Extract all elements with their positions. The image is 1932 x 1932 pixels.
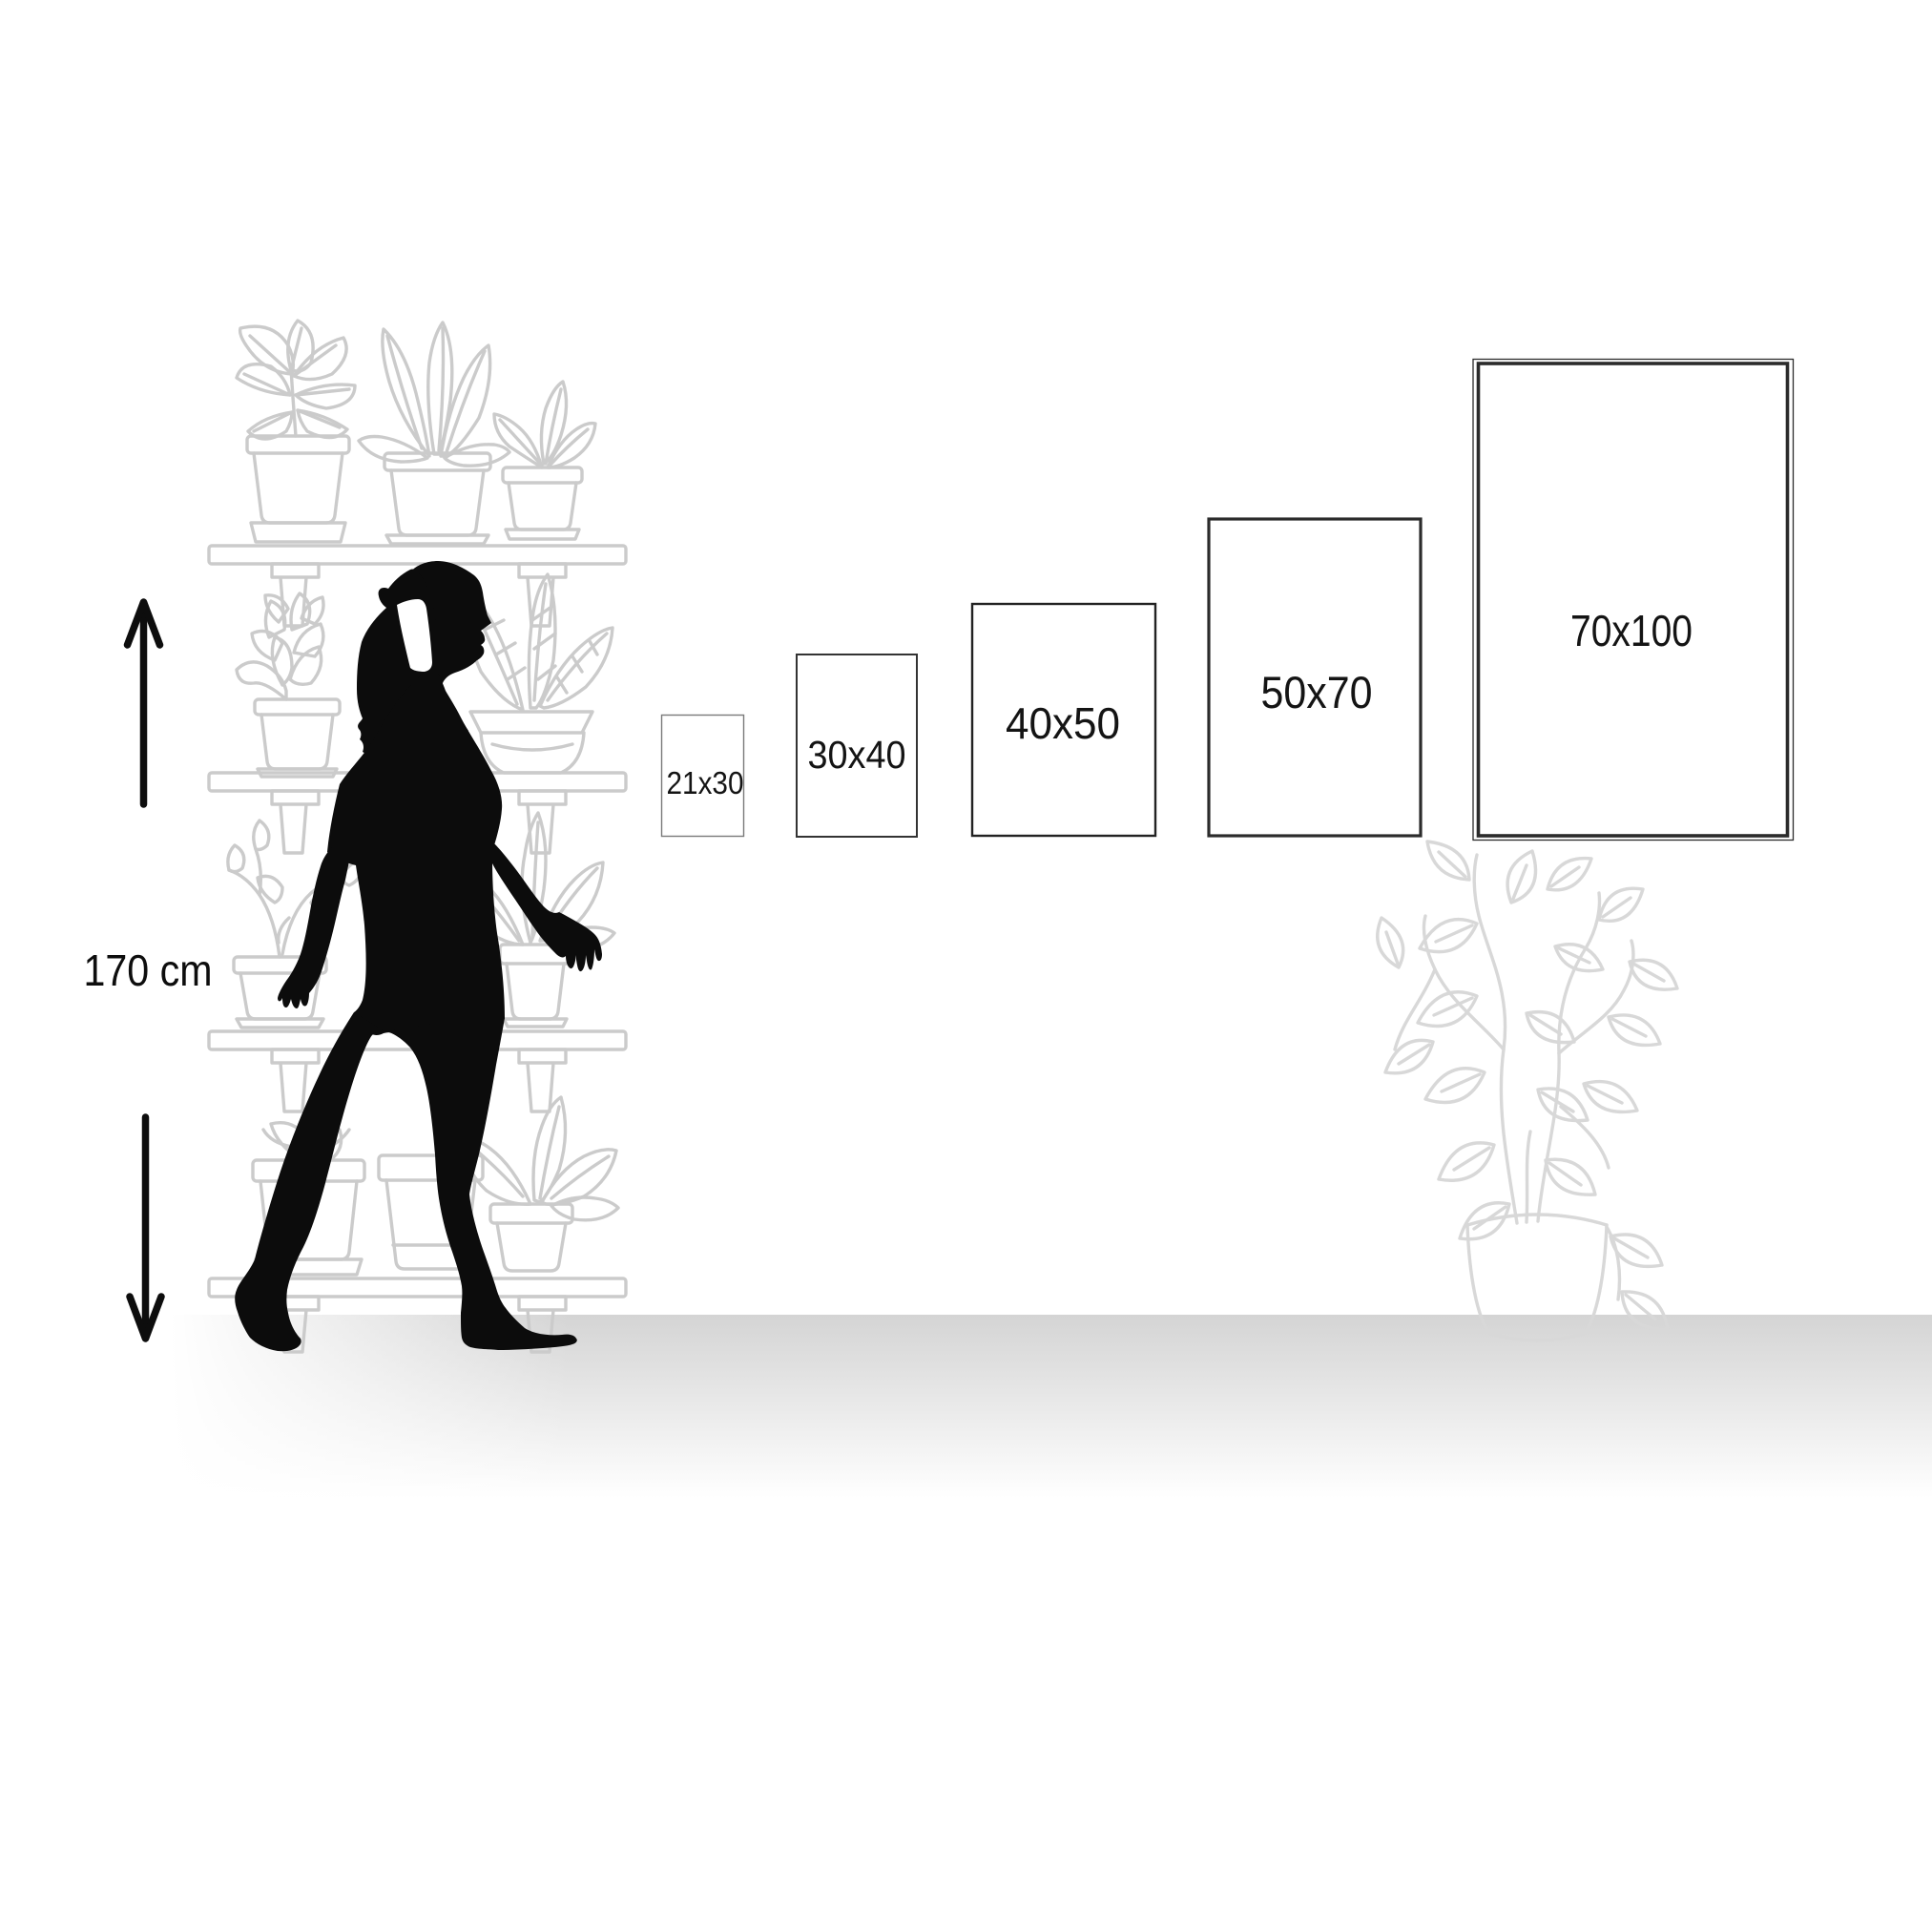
svg-text:50x70: 50x70 (1261, 667, 1373, 717)
svg-text:40x50: 40x50 (1006, 698, 1120, 748)
svg-text:30x40: 30x40 (808, 733, 906, 777)
svg-text:21x30: 21x30 (667, 765, 744, 800)
svg-text:170 cm: 170 cm (84, 945, 213, 995)
svg-text:70x100: 70x100 (1570, 606, 1693, 655)
